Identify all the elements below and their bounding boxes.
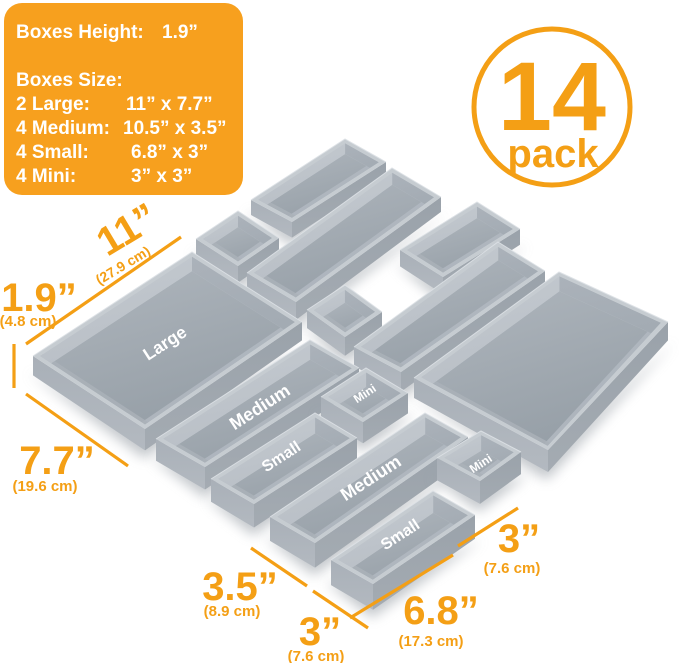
svg-text:4 Medium:: 4 Medium: xyxy=(16,118,110,139)
svg-text:6.8” x 3”: 6.8” x 3” xyxy=(131,142,208,163)
svg-text:(7.6 cm): (7.6 cm) xyxy=(484,560,541,577)
svg-text:(7.6 cm): (7.6 cm) xyxy=(288,648,345,663)
svg-text:1.9”: 1.9” xyxy=(162,22,198,43)
svg-text:pack: pack xyxy=(507,132,599,176)
svg-text:(19.6 cm): (19.6 cm) xyxy=(12,478,77,495)
svg-text:(8.9 cm): (8.9 cm) xyxy=(204,603,261,620)
svg-text:4 Mini:: 4 Mini: xyxy=(16,166,76,187)
svg-text:7.7”: 7.7” xyxy=(19,439,95,483)
svg-text:Boxes Height:: Boxes Height: xyxy=(16,22,144,43)
svg-text:(4.8 cm): (4.8 cm) xyxy=(0,313,56,330)
svg-text:3” x 3”: 3” x 3” xyxy=(131,166,192,187)
svg-text:(17.3 cm): (17.3 cm) xyxy=(398,633,463,650)
svg-text:3”: 3” xyxy=(498,517,540,561)
svg-text:10.5” x 3.5”: 10.5” x 3.5” xyxy=(123,118,227,139)
svg-text:6.8”: 6.8” xyxy=(403,589,479,633)
svg-text:11” x 7.7”: 11” x 7.7” xyxy=(126,94,213,115)
svg-text:4 Small:: 4 Small: xyxy=(16,142,89,163)
svg-text:2 Large:: 2 Large: xyxy=(16,94,90,115)
svg-text:Boxes Size:: Boxes Size: xyxy=(16,70,123,91)
